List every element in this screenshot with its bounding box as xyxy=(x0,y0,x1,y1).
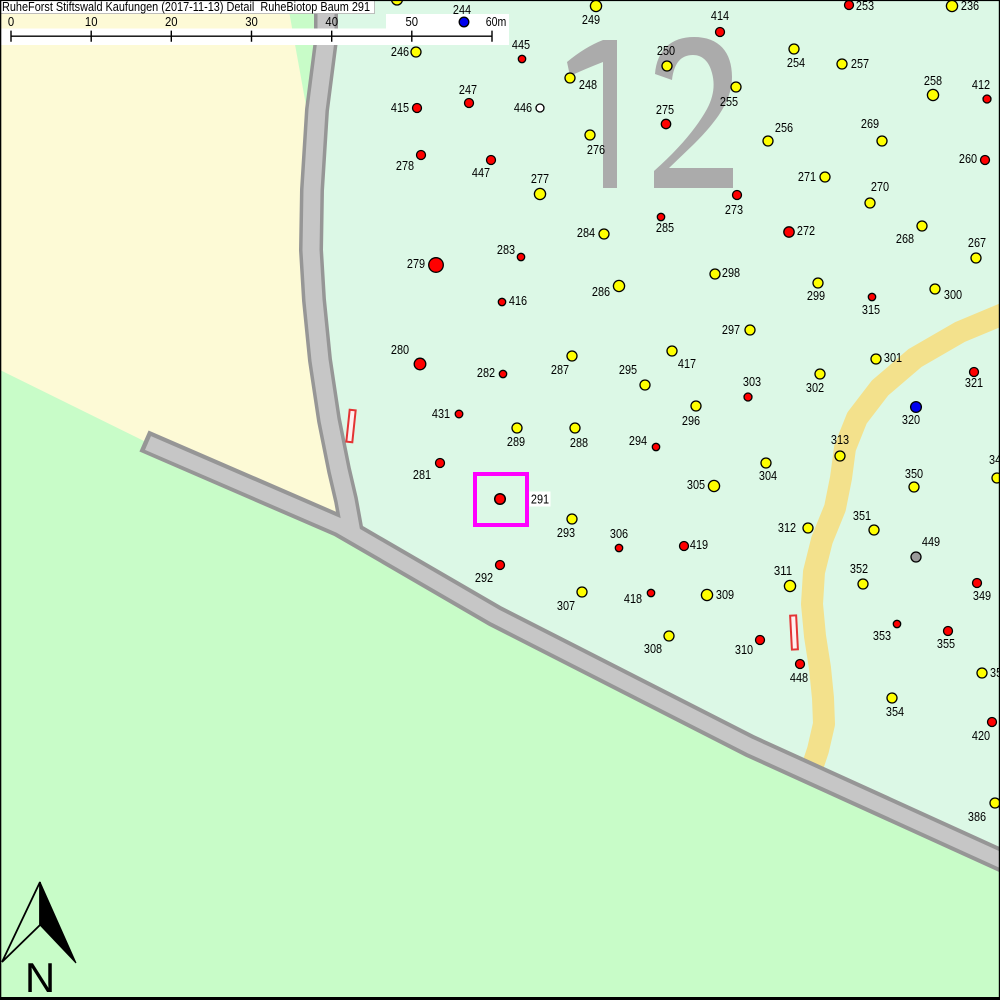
svg-text:289: 289 xyxy=(507,434,525,449)
svg-text:281: 281 xyxy=(413,467,431,482)
svg-text:50: 50 xyxy=(406,14,419,29)
svg-text:283: 283 xyxy=(497,242,515,257)
svg-text:412: 412 xyxy=(972,77,990,92)
svg-text:267: 267 xyxy=(968,235,986,250)
svg-text:431: 431 xyxy=(432,406,450,421)
svg-text:298: 298 xyxy=(722,265,740,280)
svg-text:299: 299 xyxy=(807,288,825,303)
svg-text:447: 447 xyxy=(472,165,490,180)
svg-text:255: 255 xyxy=(720,94,738,109)
svg-text:349: 349 xyxy=(973,588,991,603)
svg-text:418: 418 xyxy=(624,591,642,606)
svg-text:0: 0 xyxy=(8,14,14,29)
svg-text:414: 414 xyxy=(711,8,729,23)
svg-text:306: 306 xyxy=(610,526,628,541)
svg-text:284: 284 xyxy=(577,225,595,240)
svg-text:257: 257 xyxy=(851,56,869,71)
svg-text:248: 248 xyxy=(579,77,597,92)
svg-text:346: 346 xyxy=(989,452,1000,467)
svg-text:295: 295 xyxy=(619,362,637,377)
svg-text:288: 288 xyxy=(570,435,588,450)
svg-text:309: 309 xyxy=(716,587,734,602)
svg-text:275: 275 xyxy=(656,102,674,117)
svg-text:315: 315 xyxy=(862,302,880,317)
svg-text:297: 297 xyxy=(722,322,740,337)
svg-text:302: 302 xyxy=(806,380,824,395)
svg-text:350: 350 xyxy=(905,466,923,481)
svg-text:272: 272 xyxy=(797,223,815,238)
svg-text:313: 313 xyxy=(831,432,849,447)
svg-text:311: 311 xyxy=(774,563,792,578)
svg-text:307: 307 xyxy=(557,598,575,613)
svg-text:282: 282 xyxy=(477,365,495,380)
svg-text:279: 279 xyxy=(407,256,425,271)
svg-text:286: 286 xyxy=(592,284,610,299)
svg-text:301: 301 xyxy=(884,350,902,365)
svg-text:236: 236 xyxy=(961,0,979,13)
svg-text:278: 278 xyxy=(396,158,414,173)
svg-text:287: 287 xyxy=(551,362,569,377)
svg-text:273: 273 xyxy=(725,202,743,217)
svg-text:446: 446 xyxy=(514,100,532,115)
svg-text:256: 256 xyxy=(775,120,793,135)
svg-text:304: 304 xyxy=(759,468,777,483)
svg-text:417: 417 xyxy=(678,356,696,371)
svg-text:300: 300 xyxy=(944,287,962,302)
svg-text:416: 416 xyxy=(509,293,527,308)
svg-text:270: 270 xyxy=(871,179,889,194)
svg-text:258: 258 xyxy=(924,73,942,88)
svg-text:419: 419 xyxy=(690,537,708,552)
svg-text:277: 277 xyxy=(531,171,549,186)
svg-text:354: 354 xyxy=(886,704,904,719)
svg-text:321: 321 xyxy=(965,375,983,390)
svg-text:40: 40 xyxy=(325,14,338,29)
svg-text:415: 415 xyxy=(391,100,409,115)
svg-text:RuheForst Stiftswald Kaufungen: RuheForst Stiftswald Kaufungen (2017-11-… xyxy=(2,0,370,14)
svg-text:250: 250 xyxy=(657,43,675,58)
svg-text:353: 353 xyxy=(873,628,891,643)
svg-text:292: 292 xyxy=(475,570,493,585)
svg-text:N: N xyxy=(25,954,55,1000)
svg-text:449: 449 xyxy=(922,534,940,549)
svg-text:10: 10 xyxy=(85,14,98,29)
svg-text:268: 268 xyxy=(896,231,914,246)
svg-text:352: 352 xyxy=(850,561,868,576)
svg-text:253: 253 xyxy=(856,0,874,13)
svg-text:246: 246 xyxy=(391,44,409,59)
svg-text:320: 320 xyxy=(902,412,920,427)
svg-text:351: 351 xyxy=(853,508,871,523)
svg-text:276: 276 xyxy=(587,142,605,157)
svg-text:294: 294 xyxy=(629,433,647,448)
svg-text:285: 285 xyxy=(656,220,674,235)
svg-text:271: 271 xyxy=(798,169,816,184)
svg-text:445: 445 xyxy=(512,37,530,52)
svg-text:305: 305 xyxy=(687,477,705,492)
svg-text:269: 269 xyxy=(861,116,879,131)
svg-text:420: 420 xyxy=(972,728,990,743)
svg-text:312: 312 xyxy=(778,520,796,535)
svg-text:308: 308 xyxy=(644,641,662,656)
svg-text:293: 293 xyxy=(557,525,575,540)
svg-text:20: 20 xyxy=(165,14,178,29)
svg-text:356: 356 xyxy=(990,665,1000,680)
svg-text:386: 386 xyxy=(968,809,986,824)
svg-text:296: 296 xyxy=(682,413,700,428)
svg-text:247: 247 xyxy=(459,82,477,97)
svg-text:310: 310 xyxy=(735,642,753,657)
svg-text:60m: 60m xyxy=(486,14,507,29)
svg-text:280: 280 xyxy=(391,342,409,357)
svg-text:448: 448 xyxy=(790,670,808,685)
svg-text:249: 249 xyxy=(582,12,600,27)
svg-text:254: 254 xyxy=(787,55,805,70)
svg-text:303: 303 xyxy=(743,374,761,389)
svg-text:291: 291 xyxy=(531,492,549,507)
svg-text:355: 355 xyxy=(937,636,955,651)
svg-text:30: 30 xyxy=(245,14,258,29)
svg-text:260: 260 xyxy=(959,151,977,166)
